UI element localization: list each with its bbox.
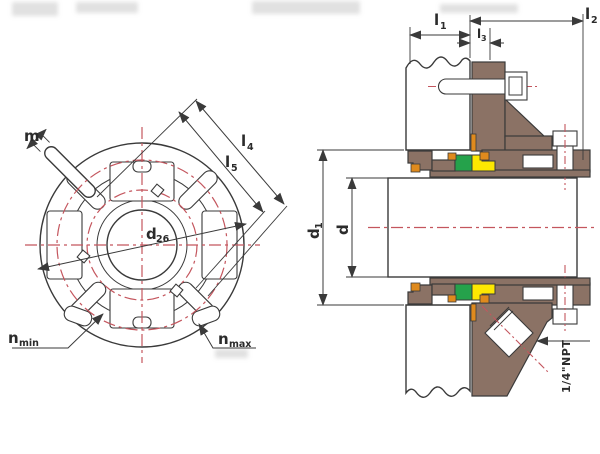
label-l3-sub: 3	[481, 34, 487, 43]
gland-pocket-upper	[523, 155, 553, 168]
seal-face-lower	[455, 284, 472, 300]
label-l1-sub: 1	[440, 21, 447, 32]
label-nmax-base: n	[218, 330, 229, 348]
front-view: m l 4 l 5 d 26 n min n max	[8, 99, 287, 363]
label-nmin-base: n	[8, 329, 19, 347]
spring-retainer-lower	[432, 284, 455, 295]
gland-gusset	[505, 99, 545, 137]
drive-pin	[42, 144, 98, 200]
label-l1-base: l	[434, 11, 439, 29]
label-nmin-sub: min	[19, 338, 39, 349]
label-d26-sub: 26	[156, 234, 170, 245]
label-npt: 1/4"NPT	[560, 340, 573, 393]
set-screw	[411, 164, 420, 172]
spring-retainer-upper	[432, 160, 455, 171]
gland-plate	[472, 62, 505, 151]
pump-housing-upper	[406, 57, 470, 150]
label-nmax-sub: max	[229, 339, 251, 350]
label-d-base: d	[334, 224, 352, 235]
section-view: l 1 l 2 l 3 d 1 d 1/4"NPT	[305, 5, 598, 397]
gland-bolt-head	[505, 72, 527, 100]
pump-housing-lower	[406, 305, 470, 397]
gland-pocket-lower	[523, 287, 553, 300]
label-m: m	[24, 127, 40, 145]
label-l4-base: l	[241, 132, 246, 150]
technical-drawing-page: m l 4 l 5 d 26 n min n max	[0, 0, 600, 454]
gland-gasket-upper	[471, 134, 476, 151]
label-l2-sub: 2	[591, 15, 598, 26]
seal-face-upper	[455, 155, 472, 171]
set-screw	[411, 283, 420, 291]
seal-drawing-svg: m l 4 l 5 d 26 n min n max	[0, 0, 600, 454]
label-l4-sub: 4	[247, 142, 254, 153]
label-l5-sub: 5	[231, 163, 238, 174]
label-d1-sub: 1	[314, 222, 325, 229]
set-screw	[448, 295, 456, 302]
gland-bolt-body	[439, 79, 505, 94]
set-screw	[480, 295, 489, 303]
set-screw	[480, 152, 489, 160]
gland-gasket-lower	[471, 304, 476, 321]
bolt-slot-ne	[176, 168, 221, 213]
set-screw	[448, 153, 456, 160]
label-l5-base: l	[225, 153, 230, 171]
label-l2-base: l	[585, 5, 590, 23]
